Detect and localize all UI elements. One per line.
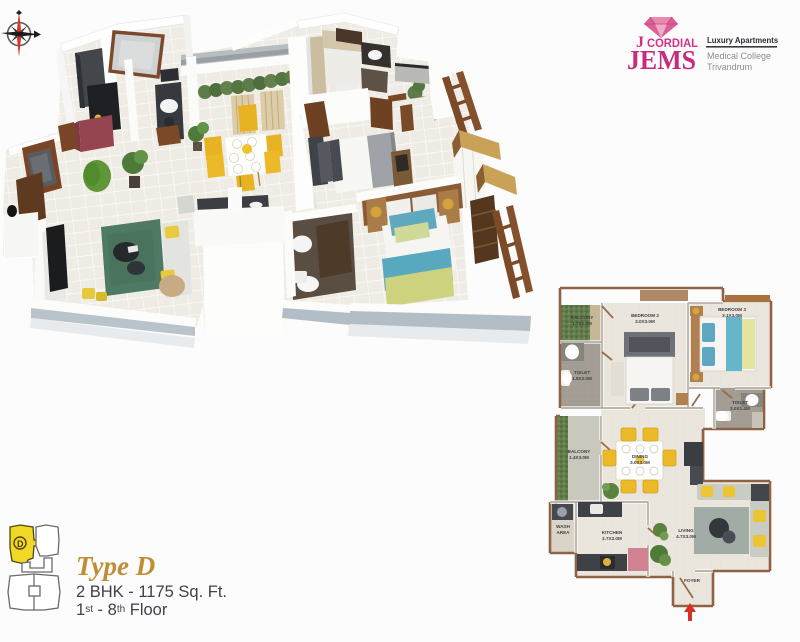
svg-text:2.0X1.4M: 2.0X1.4M <box>730 406 750 411</box>
svg-text:1.5X2.0M: 1.5X2.0M <box>572 376 592 381</box>
svg-text:KITCHEN: KITCHEN <box>602 530 623 535</box>
svg-text:TOILET: TOILET <box>732 400 748 405</box>
svg-text:LIVING: LIVING <box>678 528 694 533</box>
svg-text:2.7X2.0M: 2.7X2.0M <box>602 536 622 541</box>
svg-text:3.0X3.0M: 3.0X3.0M <box>635 319 655 324</box>
svg-text:Trivandrum: Trivandrum <box>707 62 752 72</box>
svg-text:AREA: AREA <box>556 530 570 535</box>
svg-text:3.1X3.0M: 3.1X3.0M <box>722 313 742 318</box>
svg-text:DINING: DINING <box>632 454 649 459</box>
svg-text:1st - 8th Floor: 1st - 8th Floor <box>76 601 168 619</box>
svg-text:3.0X3.0M: 3.0X3.0M <box>630 460 650 465</box>
svg-text:Medical College: Medical College <box>707 51 771 61</box>
svg-text:WASH: WASH <box>556 524 570 529</box>
svg-text:JEMS: JEMS <box>627 45 696 75</box>
svg-text:1.4X3.0M: 1.4X3.0M <box>569 455 589 460</box>
svg-text:2 BHK - 1175 Sq. Ft.: 2 BHK - 1175 Sq. Ft. <box>76 583 227 601</box>
svg-text:BEDROOM 3: BEDROOM 3 <box>718 307 746 312</box>
svg-text:1.7X1.0M: 1.7X1.0M <box>572 321 592 326</box>
svg-text:4.7X3.0M: 4.7X3.0M <box>676 534 696 539</box>
svg-text:TOILET: TOILET <box>574 370 590 375</box>
svg-text:BEDROOM 2: BEDROOM 2 <box>631 313 659 318</box>
svg-text:D: D <box>17 539 24 549</box>
svg-text:BALCONY: BALCONY <box>568 449 591 454</box>
svg-text:BALCONY: BALCONY <box>571 315 594 320</box>
svg-text:Luxury Apartments: Luxury Apartments <box>707 36 779 45</box>
svg-text:FOYER: FOYER <box>684 578 701 583</box>
svg-text:Type D: Type D <box>76 551 155 581</box>
